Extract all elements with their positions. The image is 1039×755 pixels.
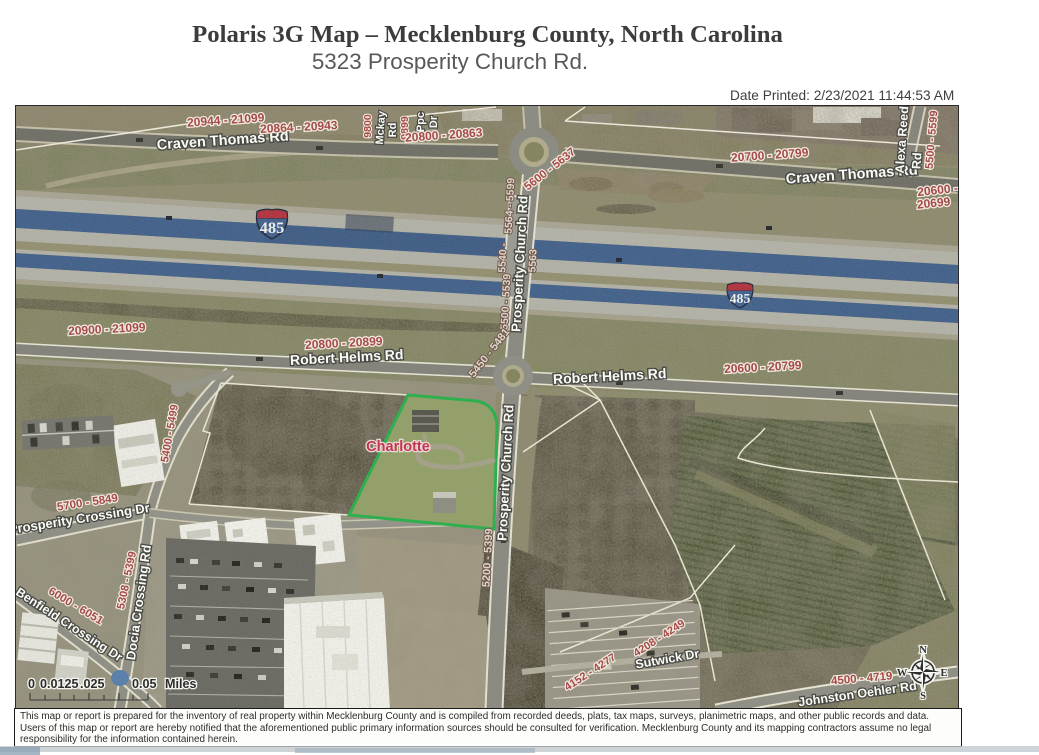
svg-text:S: S xyxy=(920,691,926,702)
svg-text:Rd: Rd xyxy=(387,123,399,138)
svg-text:9800: 9800 xyxy=(362,114,374,138)
svg-text:0.0125: 0.0125 xyxy=(40,677,79,691)
svg-text:5563: 5563 xyxy=(526,249,539,273)
svg-text:0.05: 0.05 xyxy=(132,677,157,691)
svg-text:N: N xyxy=(919,645,927,656)
svg-text:Miles: Miles xyxy=(165,677,197,691)
svg-text:5540 -: 5540 - xyxy=(496,242,510,273)
svg-text:Charlotte: Charlotte xyxy=(366,439,430,455)
svg-text:W: W xyxy=(897,668,908,679)
svg-text:Dr: Dr xyxy=(428,115,440,128)
svg-text:.025: .025 xyxy=(80,677,105,691)
svg-text:Rd: Rd xyxy=(909,152,924,170)
svg-text:E: E xyxy=(940,668,947,679)
svg-text:0: 0 xyxy=(28,677,35,691)
